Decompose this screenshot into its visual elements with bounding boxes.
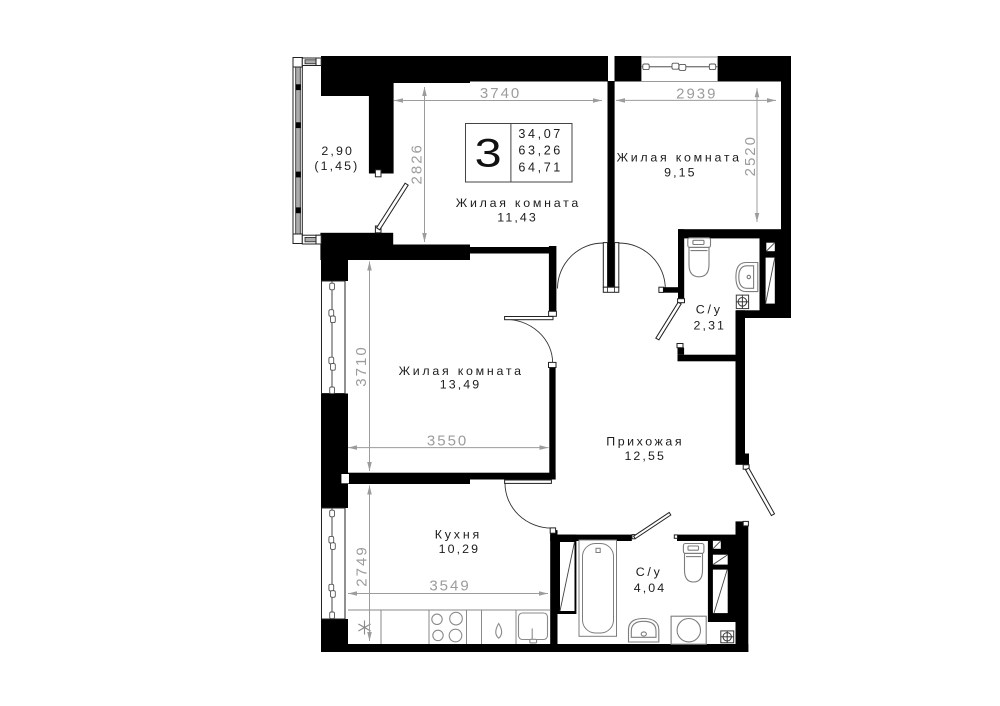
svg-text:64,71: 64,71 xyxy=(518,160,563,174)
svg-text:Жилая комната: Жилая комната xyxy=(456,196,581,210)
svg-text:Жилая комната: Жилая комната xyxy=(617,151,742,165)
svg-text:С/у: С/у xyxy=(636,565,663,579)
svg-text:11,43: 11,43 xyxy=(497,211,538,225)
svg-text:Кухня: Кухня xyxy=(435,527,482,541)
svg-text:3: 3 xyxy=(475,132,502,176)
svg-text:2,31: 2,31 xyxy=(694,319,727,333)
svg-text:Прихожая: Прихожая xyxy=(606,435,684,449)
svg-text:4,04: 4,04 xyxy=(634,581,667,595)
svg-text:2939: 2939 xyxy=(676,85,717,102)
svg-text:Жилая комната: Жилая комната xyxy=(399,364,524,378)
svg-text:2520: 2520 xyxy=(742,135,759,176)
svg-text:2826: 2826 xyxy=(409,143,426,184)
svg-text:3740: 3740 xyxy=(480,85,521,102)
svg-text:(1,45): (1,45) xyxy=(314,159,359,173)
svg-text:3710: 3710 xyxy=(353,345,370,386)
svg-text:34,07: 34,07 xyxy=(518,127,563,141)
svg-text:10,29: 10,29 xyxy=(439,542,481,556)
svg-text:12,55: 12,55 xyxy=(624,449,666,463)
svg-text:2,90: 2,90 xyxy=(321,144,354,158)
svg-text:13,49: 13,49 xyxy=(440,378,482,392)
svg-text:3550: 3550 xyxy=(427,432,468,449)
svg-text:2749: 2749 xyxy=(354,545,371,586)
svg-text:С/у: С/у xyxy=(696,303,723,317)
svg-text:63,26: 63,26 xyxy=(518,144,563,158)
svg-text:3549: 3549 xyxy=(429,578,470,595)
svg-text:9,15: 9,15 xyxy=(664,166,697,180)
